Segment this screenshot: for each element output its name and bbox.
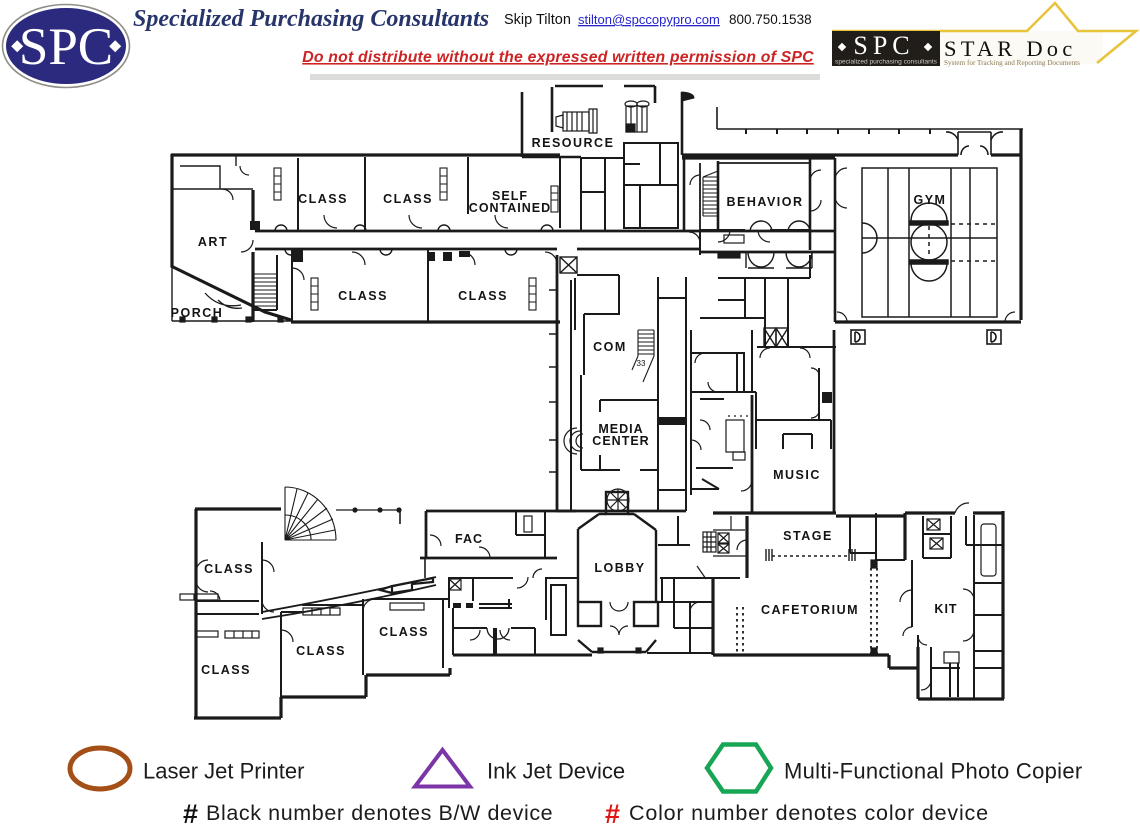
svg-text:Laser Jet Printer: Laser Jet Printer	[143, 759, 304, 784]
svg-text:Ink Jet Device: Ink Jet Device	[487, 759, 625, 784]
svg-text:CENTER: CENTER	[592, 434, 649, 448]
svg-text:PORCH: PORCH	[171, 306, 224, 320]
svg-text:CONTAINED: CONTAINED	[469, 201, 551, 215]
svg-text:CLASS: CLASS	[379, 625, 429, 639]
svg-text:#: #	[183, 799, 198, 828]
svg-text:STAGE: STAGE	[783, 529, 833, 543]
svg-text:FAC: FAC	[455, 532, 483, 546]
svg-text:Black number denotes B/W devic: Black number denotes B/W device	[206, 801, 553, 825]
svg-text:BEHAVIOR: BEHAVIOR	[726, 195, 803, 209]
svg-text:GYM: GYM	[914, 193, 947, 207]
svg-text:COM: COM	[593, 340, 627, 354]
svg-text:ART: ART	[198, 235, 228, 249]
svg-text:LOBBY: LOBBY	[594, 561, 645, 575]
svg-text:CLASS: CLASS	[204, 562, 254, 576]
svg-text:Multi-Functional Photo Copier: Multi-Functional Photo Copier	[784, 759, 1083, 784]
svg-text:CLASS: CLASS	[298, 192, 348, 206]
svg-text:CLASS: CLASS	[458, 289, 508, 303]
svg-text:Color number denotes color dev: Color number denotes color device	[629, 801, 989, 825]
svg-text:CLASS: CLASS	[296, 644, 346, 658]
svg-text:KIT: KIT	[934, 602, 957, 616]
svg-text:CLASS: CLASS	[338, 289, 388, 303]
svg-text:CAFETORIUM: CAFETORIUM	[761, 603, 859, 617]
svg-text:33: 33	[637, 359, 646, 368]
svg-text:CLASS: CLASS	[383, 192, 433, 206]
svg-text:CLASS: CLASS	[201, 663, 251, 677]
svg-text:MUSIC: MUSIC	[773, 468, 821, 482]
svg-text:#: #	[605, 799, 620, 828]
svg-text:RESOURCE: RESOURCE	[532, 136, 615, 150]
